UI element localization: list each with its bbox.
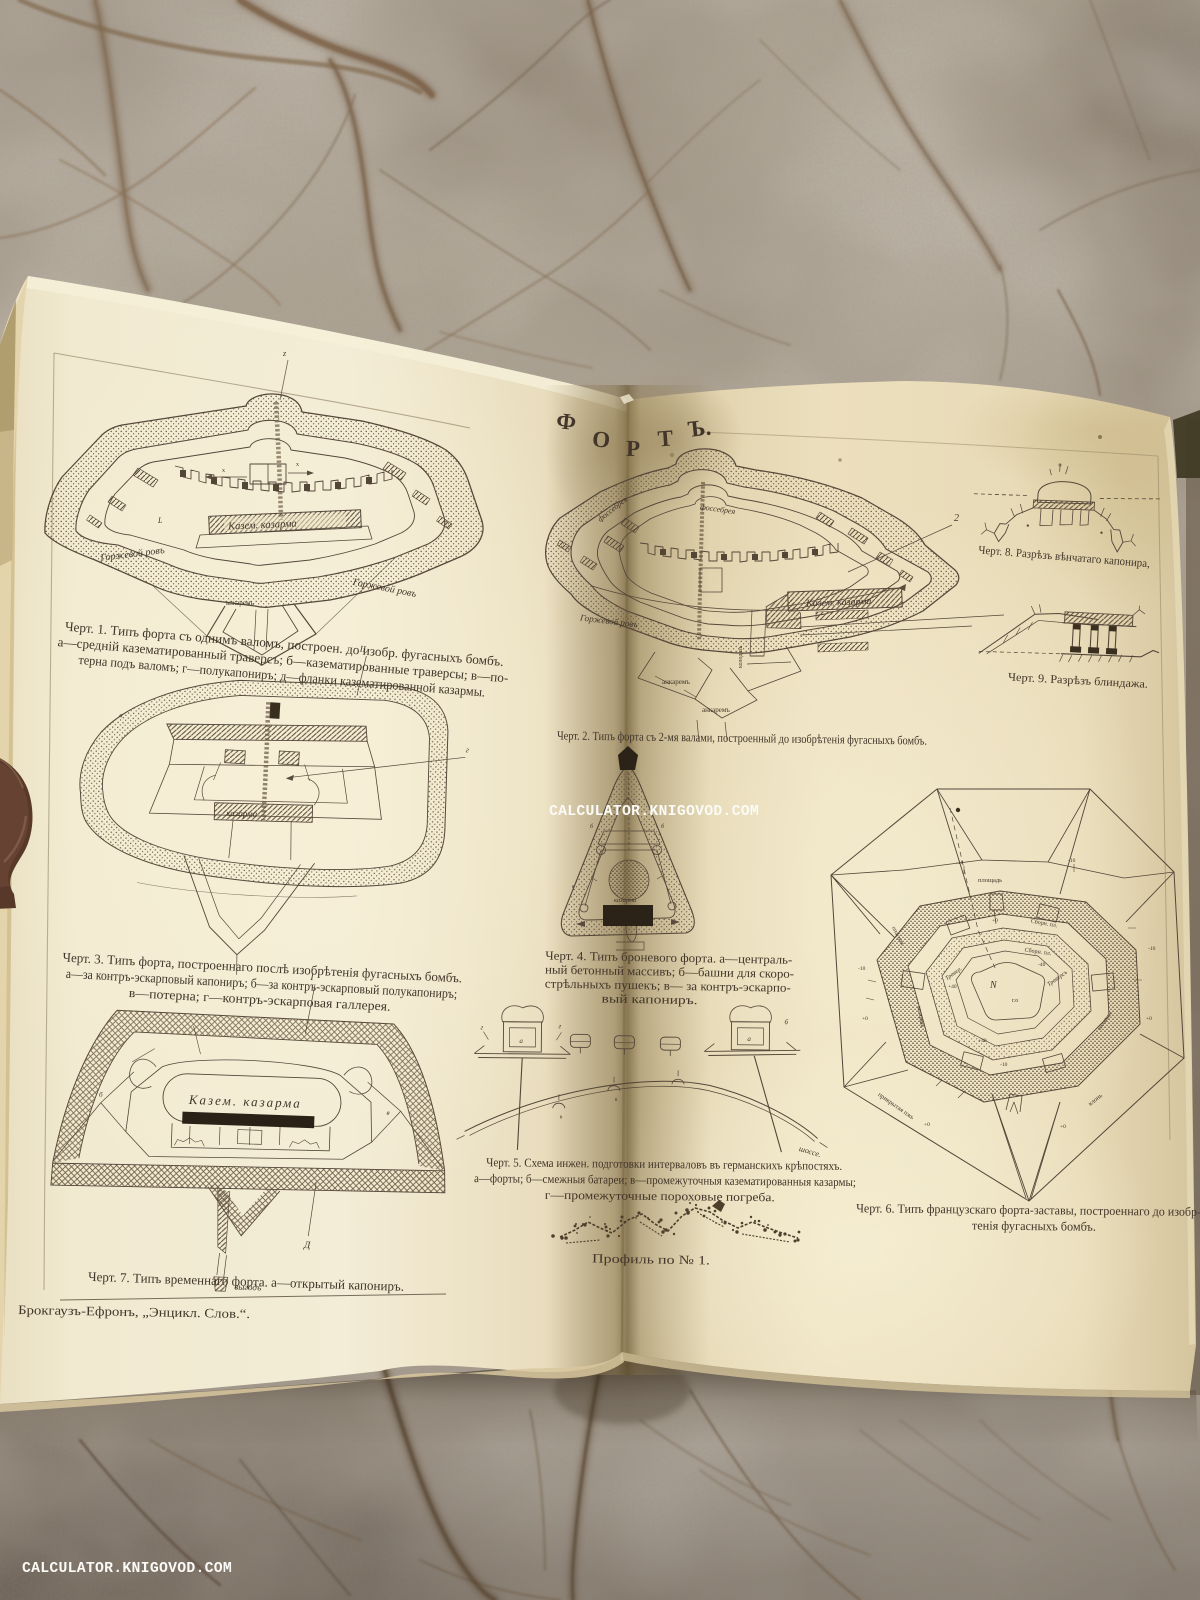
svg-text:Ф: Ф bbox=[555, 408, 577, 435]
svg-text:2: 2 bbox=[954, 513, 959, 524]
svg-text:г.о: г.о bbox=[1012, 998, 1018, 1004]
svg-text:г: г bbox=[466, 745, 470, 754]
svg-text:+0: +0 bbox=[1060, 1124, 1066, 1130]
svg-text:казарма: казарма bbox=[614, 897, 636, 904]
svg-text:+0: +0 bbox=[924, 1122, 930, 1128]
svg-text:в: в bbox=[386, 1109, 389, 1117]
svg-text:г—промежуточные пороховые погр: г—промежуточные пороховые погреба. bbox=[545, 1188, 775, 1204]
svg-text:г: г bbox=[480, 1024, 483, 1032]
svg-text:г: г bbox=[558, 1022, 561, 1030]
svg-text:CALCULATOR.KNIGOVOD.COM: CALCULATOR.KNIGOVOD.COM bbox=[22, 1561, 232, 1577]
svg-text:в: в bbox=[615, 1097, 618, 1103]
svg-text:+40: +40 bbox=[978, 1038, 987, 1044]
svg-text:площадь: площадь bbox=[978, 877, 1002, 884]
svg-text:анкаремъ: анкаремъ bbox=[226, 599, 254, 607]
svg-text:x: x bbox=[296, 462, 299, 468]
svg-text:в: в bbox=[572, 884, 575, 890]
svg-text:О: О bbox=[591, 426, 611, 452]
svg-text:Профиль по № 1.: Профиль по № 1. bbox=[592, 1251, 710, 1267]
svg-text:казарма: казарма bbox=[226, 808, 258, 819]
svg-text:N: N bbox=[989, 980, 998, 991]
svg-text:а: а bbox=[747, 1035, 751, 1043]
svg-text:колодязь: колодязь bbox=[738, 645, 744, 668]
svg-text:-10: -10 bbox=[1148, 946, 1156, 952]
svg-text:+0: +0 bbox=[1146, 1016, 1152, 1022]
svg-text:Д: Д bbox=[303, 1240, 311, 1251]
svg-text:в: в bbox=[560, 1114, 563, 1120]
svg-text:-10: -10 bbox=[956, 860, 964, 866]
svg-text:-10: -10 bbox=[1068, 858, 1076, 864]
svg-text:анкаремъ: анкаремъ bbox=[702, 706, 730, 714]
svg-text:Т: Т bbox=[657, 425, 674, 451]
svg-text:Ъ.: Ъ. bbox=[686, 415, 712, 442]
svg-text:-10: -10 bbox=[858, 966, 866, 972]
svg-text:x: x bbox=[222, 468, 225, 474]
svg-text:вый капониръ.: вый капониръ. bbox=[601, 992, 697, 1008]
svg-text:а: а bbox=[519, 1037, 523, 1045]
svg-text:-40: -40 bbox=[1038, 962, 1046, 968]
svg-text:Казем. казарма: Казем. казарма bbox=[805, 596, 872, 609]
svg-text:б: б bbox=[785, 1018, 789, 1026]
svg-text:+0: +0 bbox=[862, 1016, 868, 1022]
svg-text:+40: +40 bbox=[948, 984, 957, 990]
svg-text:L: L bbox=[157, 516, 163, 525]
svg-text:-10: -10 bbox=[1000, 1062, 1008, 1068]
svg-text:тенiя фугасныхъ бомбъ.: тенiя фугасныхъ бомбъ. bbox=[972, 1218, 1096, 1233]
svg-text:Р: Р bbox=[626, 436, 640, 461]
svg-text:+0: +0 bbox=[992, 918, 998, 924]
svg-text:CALCULATOR.KNIGOVOD.COM: CALCULATOR.KNIGOVOD.COM bbox=[549, 804, 759, 820]
svg-text:анкаремъ: анкаремъ bbox=[662, 678, 690, 686]
